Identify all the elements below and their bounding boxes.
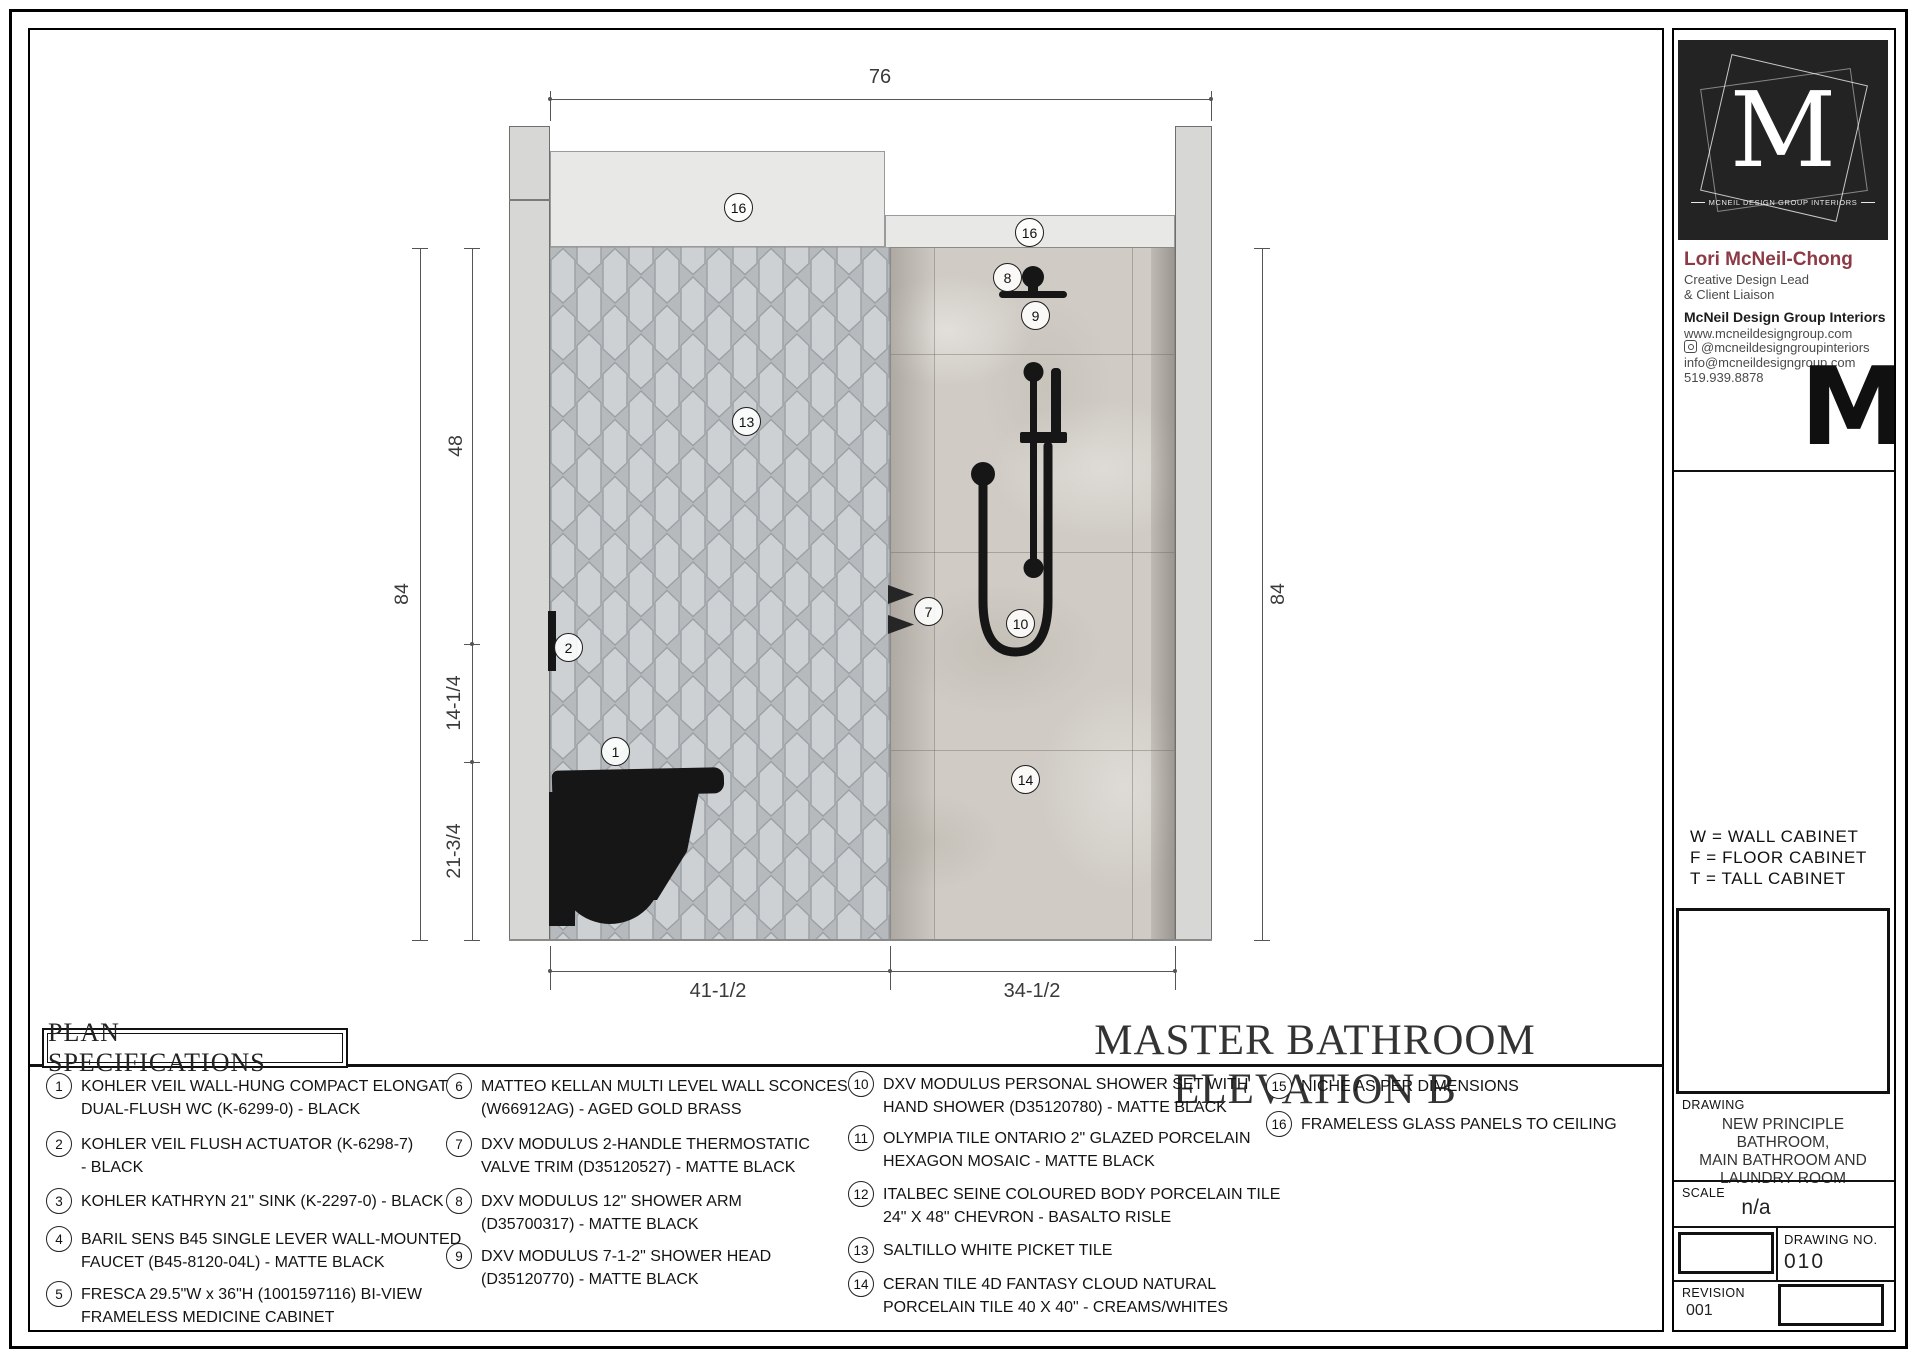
callout-10: 10	[1006, 609, 1035, 638]
dim-tick	[1211, 91, 1212, 121]
dim-dot	[1173, 969, 1177, 973]
company-logo: M MCNEIL DESIGN GROUP INTERIORS	[1678, 40, 1888, 240]
dim-line-left-overall	[420, 248, 421, 940]
toilet-foot	[549, 896, 575, 926]
right-wall-post	[1175, 126, 1212, 940]
dim-seg14-value: 14-1/4	[443, 648, 465, 758]
drawing-name-line: MAIN BATHROOM AND	[1676, 1152, 1890, 1170]
dim-dot	[548, 97, 552, 101]
dim-tick	[412, 248, 428, 249]
logo-m-letter: M	[1678, 78, 1888, 182]
dim-seg48-value: 48	[445, 391, 467, 501]
spec-line: MATTEO KELLAN MULTI LEVEL WALL SCONCES	[481, 1076, 848, 1099]
spec-item-8: 8 DXV MODULUS 12" SHOWER ARM(D35700317) …	[446, 1191, 742, 1236]
spec-line: NICHE AS PER DIMENSIONS	[1301, 1076, 1519, 1099]
spec-item-1: 1 KOHLER VEIL WALL-HUNG COMPACT ELONGATE…	[46, 1076, 470, 1121]
spec-line: ITALBEC SEINE COLOURED BODY PORCELAIN TI…	[883, 1184, 1280, 1207]
dim-tick	[550, 946, 551, 990]
spec-item-7: 7 DXV MODULUS 2-HANDLE THERMOSTATICVALVE…	[446, 1134, 810, 1179]
left-wall-post-seam	[509, 199, 550, 201]
plan-specifications-box: PLAN SPECIFICATIONS	[42, 1028, 348, 1068]
logo-caption-text: MCNEIL DESIGN GROUP INTERIORS	[1709, 198, 1858, 207]
revision-label: REVISION	[1682, 1286, 1745, 1300]
dim-tick	[1175, 946, 1176, 990]
spec-item-11: 11 OLYMPIA TILE ONTARIO 2" GLAZED PORCEL…	[848, 1128, 1251, 1173]
contact-instagram[interactable]: @mcneildesigngroupinteriors	[1684, 340, 1870, 355]
sidebar-divider	[1776, 1226, 1778, 1280]
dim-tick	[550, 91, 551, 121]
spec-line: HEXAGON MOSAIC - MATTE BLACK	[883, 1151, 1251, 1174]
spec-line: (D35700317) - MATTE BLACK	[481, 1214, 742, 1237]
spec-item-number: 10	[848, 1071, 874, 1097]
dim-dot	[470, 760, 474, 764]
spec-line: DUAL-FLUSH WC (K-6299-0) - BLACK	[81, 1099, 470, 1122]
dim-line-left-segments	[472, 248, 473, 940]
dim-line-bottom	[550, 971, 1175, 972]
dim-tick	[890, 946, 891, 990]
spec-line: KOHLER VEIL FLUSH ACTUATOR (K-6298-7)	[81, 1134, 413, 1157]
toilet-seat	[552, 767, 725, 797]
left-wall-post	[509, 126, 550, 940]
spec-item-number: 13	[848, 1237, 874, 1263]
legend-floor-cabinet: F = FLOOR CABINET	[1690, 847, 1867, 868]
spec-item-number: 11	[848, 1125, 874, 1151]
contact-role: & Client Liaison	[1684, 287, 1774, 302]
tile-joint	[1132, 248, 1133, 939]
spec-line: FRESCA 29.5"W x 36"H (1001597116) BI-VIE…	[81, 1284, 422, 1307]
spec-item-3: 3 KOHLER KATHRYN 21" SINK (K-2297-0) - B…	[46, 1191, 444, 1214]
spec-line: 24" X 48" CHEVRON - BASALTO RISLE	[883, 1207, 1280, 1230]
dim-right-overall-value: 84	[1267, 539, 1289, 649]
logo-caption-rule	[1691, 202, 1705, 203]
callout-14: 14	[1011, 765, 1040, 794]
spec-line: DXV MODULUS 2-HANDLE THERMOSTATIC	[481, 1134, 810, 1157]
contact-website[interactable]: www.mcneildesigngroup.com	[1684, 326, 1852, 341]
callout-8: 8	[993, 263, 1022, 292]
spec-line: KOHLER VEIL WALL-HUNG COMPACT ELONGATED	[81, 1076, 470, 1099]
dim-dot	[470, 642, 474, 646]
dim-tick	[412, 940, 428, 941]
tile-joint	[934, 248, 935, 939]
sidebar-divider	[1674, 1180, 1894, 1182]
spec-line: DXV MODULUS PERSONAL SHOWER SET WITH	[883, 1074, 1248, 1097]
contact-role: Creative Design Lead	[1684, 272, 1809, 287]
spec-line: FAUCET (B45-8120-04L) - MATTE BLACK	[81, 1252, 461, 1275]
drawing-sheet: 16 16 13 8 9 10 7 14 2 1 76 84 48 14-1/4…	[0, 0, 1920, 1360]
dim-left-overall-value: 84	[391, 539, 413, 649]
spec-line: SALTILLO WHITE PICKET TILE	[883, 1240, 1112, 1263]
spec-item-number: 6	[446, 1073, 472, 1099]
callout-16-left: 16	[724, 193, 753, 222]
spec-item-number: 12	[848, 1181, 874, 1207]
spec-line: (D35120770) - MATTE BLACK	[481, 1269, 771, 1292]
drawing-name: NEW PRINCIPLE BATHROOM, MAIN BATHROOM AN…	[1676, 1116, 1890, 1188]
drawing-name-line: NEW PRINCIPLE BATHROOM,	[1676, 1116, 1890, 1152]
floor-line	[509, 939, 1212, 941]
spec-item-5: 5 FRESCA 29.5"W x 36"H (1001597116) BI-V…	[46, 1284, 422, 1329]
spec-item-number: 4	[46, 1226, 72, 1252]
drawing-no-label: DRAWING NO.	[1784, 1232, 1877, 1247]
dim-seg21-value: 21-3/4	[443, 796, 465, 906]
callout-7: 7	[914, 597, 943, 626]
spec-item-number: 3	[46, 1188, 72, 1214]
callout-13: 13	[732, 407, 761, 436]
dim-tick	[464, 248, 480, 249]
spec-line: VALVE TRIM (D35120527) - MATTE BLACK	[481, 1157, 810, 1180]
scale-value: n/a	[1676, 1196, 1836, 1220]
drawing-no-value: 010	[1784, 1250, 1825, 1274]
callout-16-right: 16	[1015, 218, 1044, 247]
empty-cell-box	[1678, 1232, 1774, 1274]
dim-dot	[888, 969, 892, 973]
spec-line: OLYMPIA TILE ONTARIO 2" GLAZED PORCELAIN	[883, 1128, 1251, 1151]
logo-caption-rule	[1861, 202, 1875, 203]
spec-item-4: 4 BARIL SENS B45 SINGLE LEVER WALL-MOUNT…	[46, 1229, 461, 1274]
revision-value: 001	[1686, 1302, 1713, 1320]
m-watermark-icon: M	[1800, 362, 1894, 454]
dim-tick	[464, 940, 480, 941]
dim-dot	[1209, 97, 1213, 101]
spec-item-number: 9	[446, 1243, 472, 1269]
spec-item-number: 7	[446, 1131, 472, 1157]
sidebar-divider	[1674, 1226, 1894, 1228]
contact-name: Lori McNeil-Chong	[1684, 249, 1853, 271]
spec-item-2: 2 KOHLER VEIL FLUSH ACTUATOR (K-6298-7)-…	[46, 1134, 413, 1179]
dim-tick	[1254, 248, 1270, 249]
spec-line: PORCELAIN TILE 40 X 40" - CREAMS/WHITES	[883, 1297, 1228, 1320]
spec-item-10: 10 DXV MODULUS PERSONAL SHOWER SET WITHH…	[848, 1074, 1248, 1119]
dim-dot	[548, 969, 552, 973]
drawing-section-label: DRAWING	[1682, 1098, 1745, 1112]
spec-line: FRAMELESS MEDICINE CABINET	[81, 1307, 422, 1330]
spec-item-9: 9 DXV MODULUS 7-1-2" SHOWER HEAD(D351207…	[446, 1246, 771, 1291]
contact-instagram-handle: @mcneildesigngroupinteriors	[1701, 340, 1870, 355]
spec-item-16: 16 FRAMELESS GLASS PANELS TO CEILING	[1266, 1114, 1617, 1137]
spec-line: KOHLER KATHRYN 21" SINK (K-2297-0) - BLA…	[81, 1191, 444, 1214]
plan-specifications-heading: PLAN SPECIFICATIONS	[48, 1018, 342, 1078]
spec-item-12: 12 ITALBEC SEINE COLOURED BODY PORCELAIN…	[848, 1184, 1280, 1229]
marble-right-shadow	[1151, 248, 1174, 939]
spec-item-number: 16	[1266, 1111, 1292, 1137]
instagram-icon	[1684, 340, 1697, 353]
spec-item-number: 8	[446, 1188, 472, 1214]
spec-line: DXV MODULUS 12" SHOWER ARM	[481, 1191, 742, 1214]
spec-line: - BLACK	[81, 1157, 413, 1180]
legend-wall-cabinet: W = WALL CABINET	[1690, 826, 1867, 847]
dim-bottom-right-value: 34-1/2	[972, 980, 1092, 1003]
spec-line: CERAN TILE 4D FANTASY CLOUD NATURAL	[883, 1274, 1228, 1297]
sidebar-divider	[1674, 1280, 1894, 1282]
dim-top-value: 76	[850, 66, 910, 89]
sidebar-divider	[1674, 470, 1894, 472]
spec-item-number: 2	[46, 1131, 72, 1157]
spec-item-14: 14 CERAN TILE 4D FANTASY CLOUD NATURALPO…	[848, 1274, 1228, 1319]
cabinet-legend: W = WALL CABINET F = FLOOR CABINET T = T…	[1690, 826, 1867, 889]
spec-item-number: 14	[848, 1271, 874, 1297]
contact-company: McNeil Design Group Interiors	[1684, 309, 1885, 325]
spec-item-15: 15 NICHE AS PER DIMENSIONS	[1266, 1076, 1519, 1099]
contact-phone: 519.939.8878	[1684, 370, 1764, 385]
glass-panel-left	[550, 151, 885, 247]
spec-item-6: 6 MATTEO KELLAN MULTI LEVEL WALL SCONCES…	[446, 1076, 848, 1121]
spec-line: (W66912AG) - AGED GOLD BRASS	[481, 1099, 848, 1122]
spec-item-number: 15	[1266, 1073, 1292, 1099]
spec-line: DXV MODULUS 7-1-2" SHOWER HEAD	[481, 1246, 771, 1269]
spec-item-number: 5	[46, 1281, 72, 1307]
spec-line: FRAMELESS GLASS PANELS TO CEILING	[1301, 1114, 1617, 1137]
empty-cell-box	[1778, 1284, 1884, 1326]
spec-line: HAND SHOWER (D35120780) - MATTE BLACK	[883, 1097, 1248, 1120]
callout-9: 9	[1021, 301, 1050, 330]
dim-line-right-overall	[1262, 248, 1263, 940]
spec-item-13: 13 SALTILLO WHITE PICKET TILE	[848, 1240, 1112, 1263]
dim-tick	[1254, 940, 1270, 941]
logo-caption: MCNEIL DESIGN GROUP INTERIORS	[1688, 198, 1878, 207]
notes-box	[1676, 908, 1890, 1094]
callout-2: 2	[554, 633, 583, 662]
dim-line-top	[550, 99, 1211, 100]
callout-1: 1	[601, 737, 630, 766]
legend-tall-cabinet: T = TALL CABINET	[1690, 868, 1867, 889]
dim-bottom-left-value: 41-1/2	[658, 980, 778, 1003]
spec-line: BARIL SENS B45 SINGLE LEVER WALL-MOUNTED	[81, 1229, 461, 1252]
